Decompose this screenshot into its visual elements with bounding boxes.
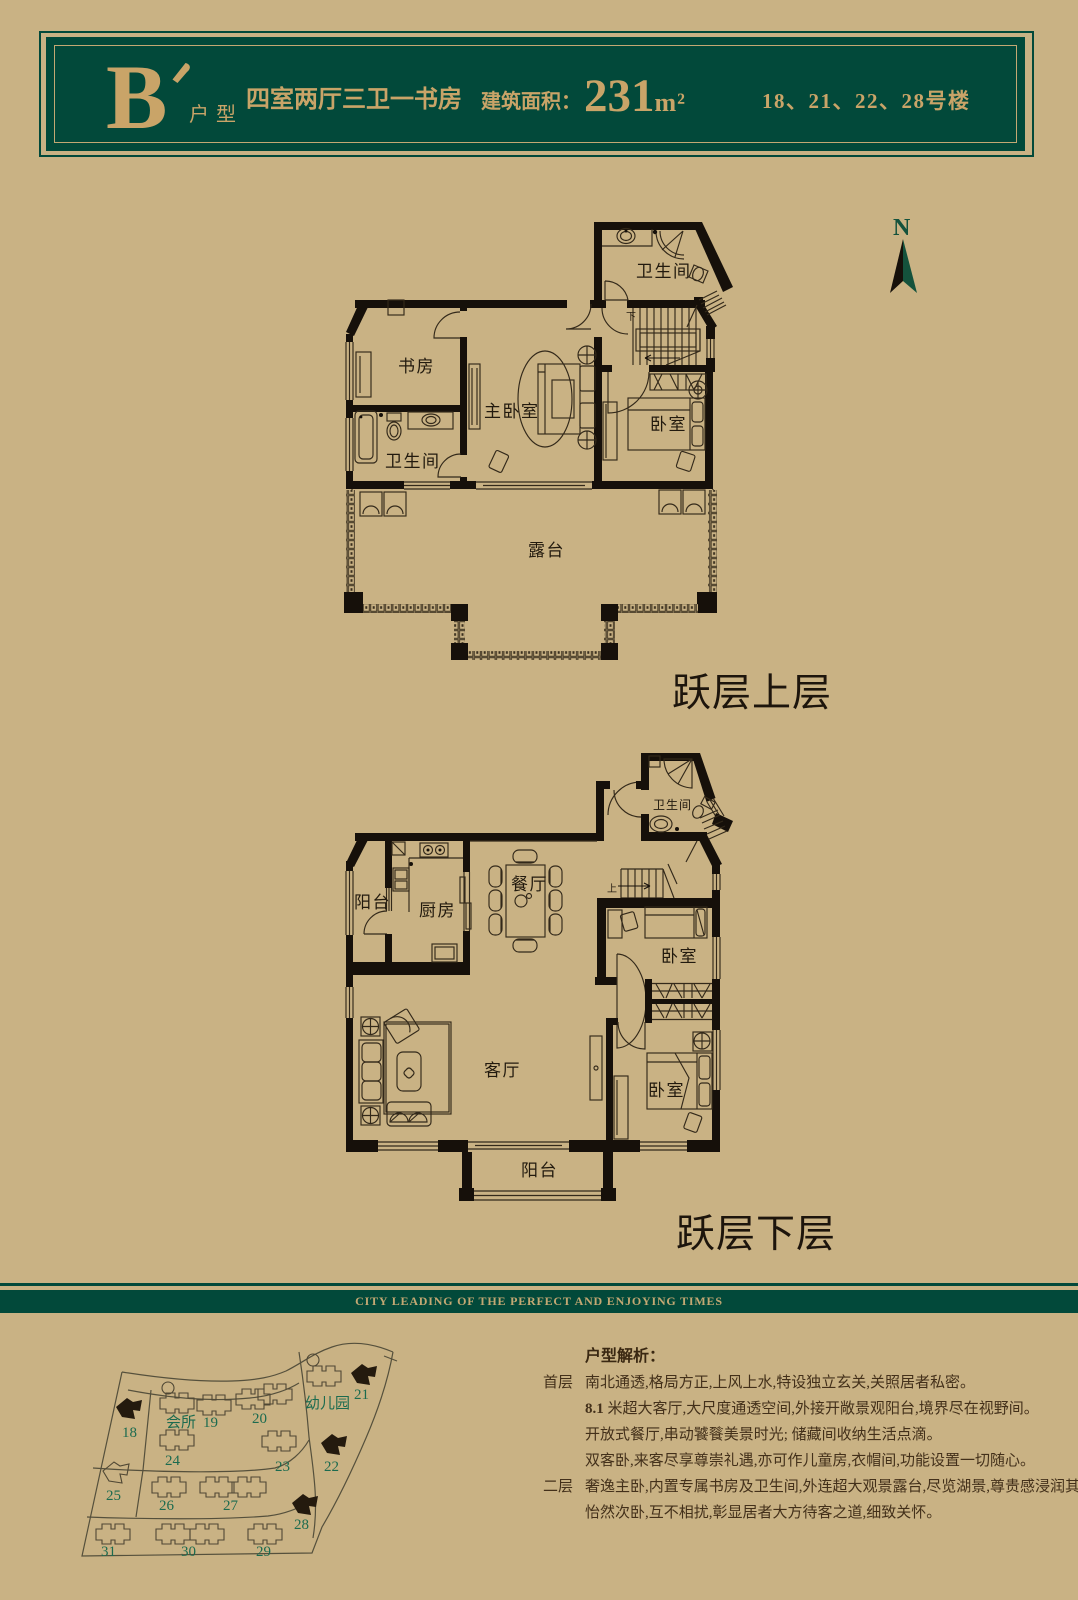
svg-text:主卧室: 主卧室: [484, 402, 540, 421]
svg-text:卫生间: 卫生间: [385, 452, 441, 471]
svg-text:厨房: 厨房: [419, 901, 456, 920]
svg-text:31: 31: [101, 1544, 116, 1560]
svg-text:28: 28: [294, 1517, 309, 1533]
svg-text:下: 下: [626, 312, 636, 323]
svg-text:卧室: 卧室: [650, 415, 687, 434]
svg-text:23: 23: [275, 1459, 290, 1475]
svg-text:卫生间: 卫生间: [653, 798, 692, 812]
svg-text:20: 20: [252, 1411, 267, 1427]
svg-text:27: 27: [223, 1498, 239, 1514]
svg-text:22: 22: [324, 1459, 339, 1475]
svg-text:会所: 会所: [166, 1414, 196, 1431]
svg-text:书房: 书房: [398, 357, 435, 376]
svg-text:21: 21: [354, 1387, 369, 1403]
svg-text:卧室: 卧室: [648, 1081, 685, 1100]
svg-text:25: 25: [106, 1488, 121, 1504]
svg-text:阳台: 阳台: [521, 1161, 558, 1180]
svg-text:餐厅: 餐厅: [511, 875, 548, 894]
svg-text:19: 19: [203, 1415, 218, 1431]
svg-text:露台: 露台: [528, 541, 565, 560]
svg-text:卫生间: 卫生间: [636, 262, 692, 281]
svg-text:29: 29: [256, 1544, 271, 1560]
svg-text:上: 上: [607, 883, 617, 895]
svg-text:N: N: [893, 215, 911, 241]
svg-text:30: 30: [181, 1544, 196, 1560]
svg-text:阳台: 阳台: [354, 893, 391, 912]
svg-text:卧室: 卧室: [661, 947, 698, 966]
svg-text:客厅: 客厅: [484, 1061, 521, 1080]
svg-text:18: 18: [122, 1425, 137, 1441]
svg-text:幼儿园: 幼儿园: [305, 1395, 350, 1412]
svg-text:24: 24: [165, 1453, 181, 1469]
svg-text:26: 26: [159, 1498, 175, 1514]
